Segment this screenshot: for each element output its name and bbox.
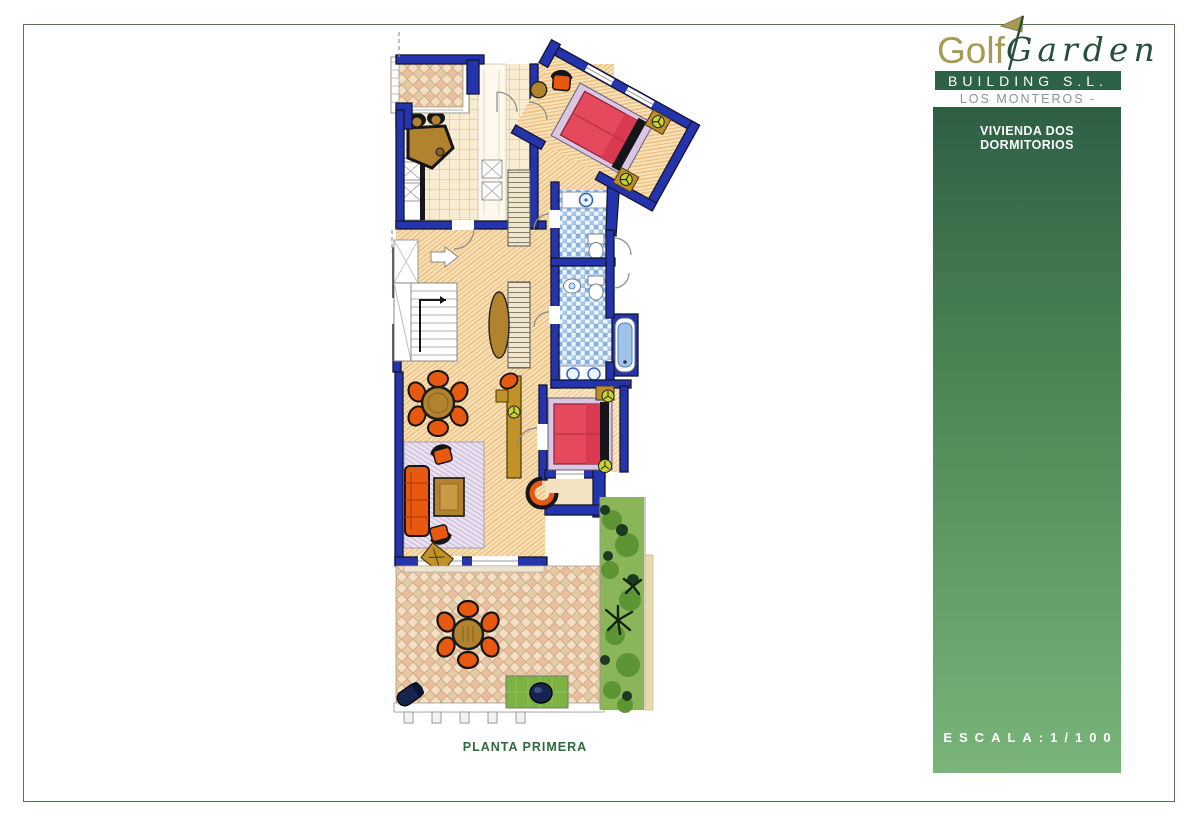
terrace-bottom [394, 566, 604, 723]
floor-plan-drawing [385, 28, 705, 740]
floor-plan [385, 28, 705, 740]
building-bar: BUILDING S.L. [935, 71, 1121, 90]
bedroom-2 [548, 386, 614, 473]
logo-garden-text: Garden [1006, 30, 1160, 69]
panel-title: VIVIENDA DOS DORMITORIOS [933, 124, 1121, 152]
info-panel: VIVIENDA DOS DORMITORIOS ESCALA:1/100 [933, 107, 1121, 773]
logo-row: Golf Garden [933, 26, 1123, 72]
plan-caption: PLANTA PRIMERA [385, 740, 665, 754]
garden-hedge [600, 497, 653, 713]
brand-logo: Golf Garden BUILDING S.L. LOS MONTEROS -… [933, 26, 1123, 106]
scale-label: ESCALA:1/100 [933, 730, 1121, 745]
bathrooms [559, 190, 638, 386]
brochure-page: PLANTA PRIMERA Golf Garden BUILDING S.L.… [0, 0, 1200, 827]
